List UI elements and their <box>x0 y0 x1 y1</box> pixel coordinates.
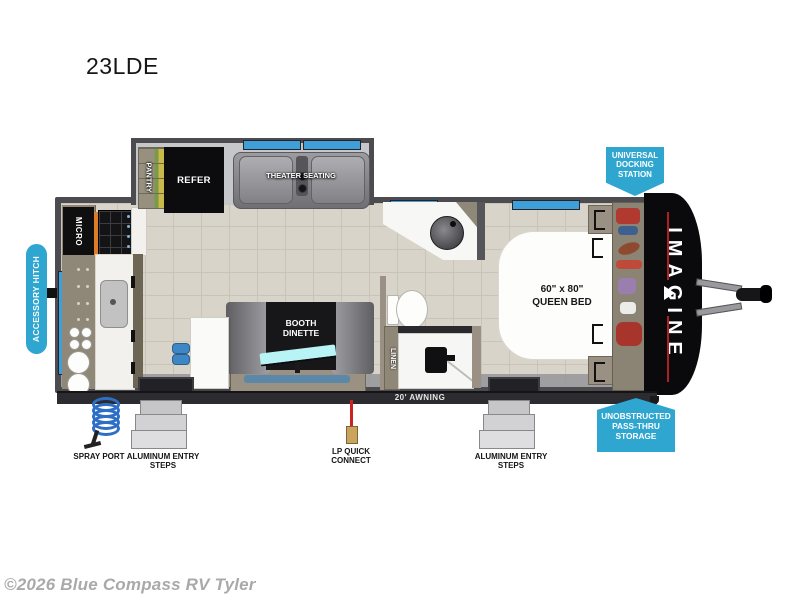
page-title: 23LDE <box>86 53 159 80</box>
wardrobe-item <box>616 260 642 269</box>
linen-label: LINEN <box>389 348 396 369</box>
lp-connect-label: LP QUICK CONNECT <box>318 447 384 465</box>
shower-frame <box>398 326 472 333</box>
cabinet-handle <box>131 276 135 288</box>
entry-steps-icon <box>135 414 187 431</box>
cabinet-handle <box>131 362 135 374</box>
window-icon <box>303 140 361 150</box>
wardrobe-item <box>616 208 640 224</box>
window-icon <box>512 200 580 210</box>
hitch-frame <box>696 278 743 292</box>
entry-steps-label: ALUMINUM ENTRY STEPS <box>126 452 200 470</box>
cabinet-knob <box>77 302 80 305</box>
stool <box>172 354 190 365</box>
entry-steps-label: ALUMINUM ENTRY STEPS <box>474 452 548 470</box>
stove-knob <box>127 235 130 238</box>
dinette-accent <box>244 375 350 383</box>
awning-label: 20' AWNING <box>330 393 510 402</box>
stove-knob <box>127 215 130 218</box>
shower-fixture <box>425 347 447 373</box>
cabinet-knob <box>86 268 89 271</box>
window-icon <box>243 140 301 150</box>
spray-port-label: SPRAY PORT <box>70 452 128 461</box>
entry-steps-icon <box>483 414 535 431</box>
sink-bowl <box>69 339 80 350</box>
refrigerator: REFER <box>164 147 224 213</box>
refer-label: REFER <box>177 175 211 186</box>
cabinet-knob <box>77 285 80 288</box>
entry-steps-icon <box>479 430 535 449</box>
hitch-jack <box>760 285 772 303</box>
theater-label: THEATER SEATING <box>238 171 364 180</box>
cabinet-knob <box>86 302 89 305</box>
entry-steps-icon <box>488 400 530 415</box>
wardrobe-item <box>616 322 642 346</box>
kitchen-island <box>190 317 229 389</box>
stove-knob <box>127 225 130 228</box>
recliner-seat <box>239 156 293 204</box>
faucet-icon <box>450 221 456 227</box>
cabinet-knob <box>77 268 80 271</box>
recliner-seat <box>311 156 365 204</box>
pantry-label: PANTRY <box>145 162 154 192</box>
handle-bracket <box>592 238 603 258</box>
bathroom-sink <box>430 216 464 250</box>
stool <box>172 343 190 354</box>
accessory-hitch-label: ACCESSORY HITCH <box>32 256 42 342</box>
pass-thru-storage-callout: UNOBSTRUCTED PASS-THRU STORAGE <box>597 398 675 452</box>
sink-bowl <box>81 339 92 350</box>
universal-docking-callout: UNIVERSAL DOCKING STATION <box>606 147 664 196</box>
brand-logo-icon <box>664 286 675 300</box>
entry-steps-icon <box>140 400 182 415</box>
toilet <box>396 290 428 329</box>
copyright: ©2026 Blue Compass RV Tyler <box>4 575 256 595</box>
cabinet-knob <box>86 285 89 288</box>
sink-bowl <box>81 327 92 338</box>
bed-name: QUEEN BED <box>532 296 591 309</box>
lp-connect-icon <box>346 426 358 444</box>
cupholder <box>298 184 307 193</box>
handle-bracket <box>594 362 605 382</box>
cabinet-handle <box>131 330 135 342</box>
brand-stripe <box>667 212 669 280</box>
dinette-bench <box>332 302 374 374</box>
wardrobe-item <box>618 278 636 294</box>
booth-dinette-label: BOOTH DINETTE <box>271 318 331 338</box>
handle-bracket <box>594 210 605 230</box>
bed-size: 60" x 80" <box>532 283 591 296</box>
bathroom-wall <box>477 202 485 260</box>
cabinet-knob <box>77 318 80 321</box>
spray-nozzle-icon <box>84 441 101 449</box>
kitchen-counter <box>131 207 147 256</box>
wardrobe-item <box>620 302 636 314</box>
micro-label: MICRO <box>74 216 83 245</box>
sink-bowl <box>67 351 90 374</box>
cabinet-knob <box>86 318 89 321</box>
sink-bowl <box>69 327 80 338</box>
wardrobe-item <box>618 226 638 235</box>
handle-bracket <box>592 324 603 344</box>
sink-drain <box>110 299 116 305</box>
lp-connect-icon <box>350 400 353 427</box>
bathroom-wall <box>472 326 481 388</box>
hitch-frame <box>696 302 743 316</box>
microwave: MICRO <box>63 207 94 255</box>
accessory-hitch-callout: ACCESSORY HITCH <box>26 244 47 354</box>
entry-steps-icon <box>131 430 187 449</box>
bed-label: 60" x 80" QUEEN BED <box>532 283 601 309</box>
stove-knob <box>127 245 130 248</box>
brand-stripe <box>667 316 669 382</box>
